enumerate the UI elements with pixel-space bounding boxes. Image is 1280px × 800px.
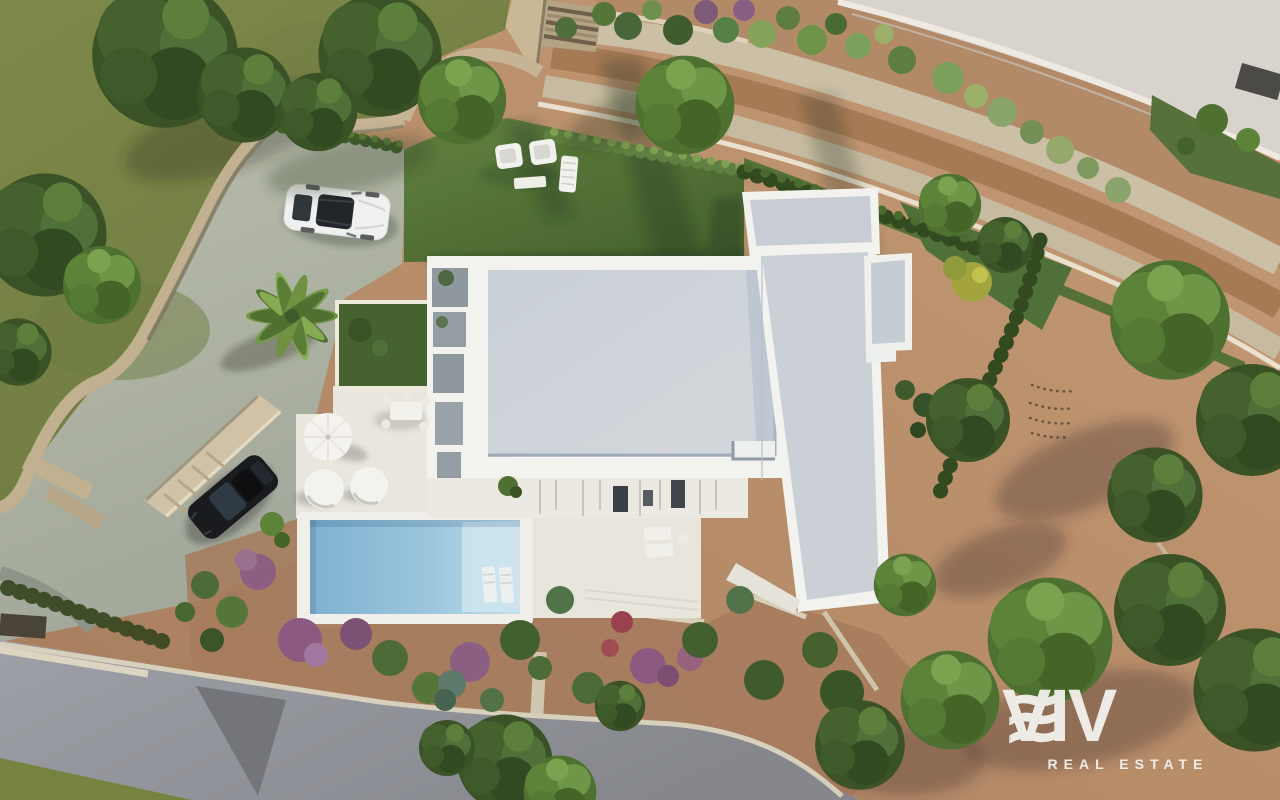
lower-rooms (428, 476, 748, 518)
triple-wave-e-outline-icon (1009, 690, 1057, 744)
main-roof (488, 270, 775, 457)
brand-tagline: REAL ESTATE (1002, 756, 1254, 772)
aerial-villa-render: VIV REAL ESTATE (0, 0, 1280, 800)
parasol (304, 413, 352, 461)
swimming-pool (297, 512, 533, 624)
dark-fence (0, 613, 47, 638)
round-pouf (350, 467, 388, 505)
brand-row: VIV (1002, 688, 1254, 744)
vive-watermark: VIV REAL ESTATE (1002, 688, 1254, 772)
round-pouf (304, 469, 344, 509)
